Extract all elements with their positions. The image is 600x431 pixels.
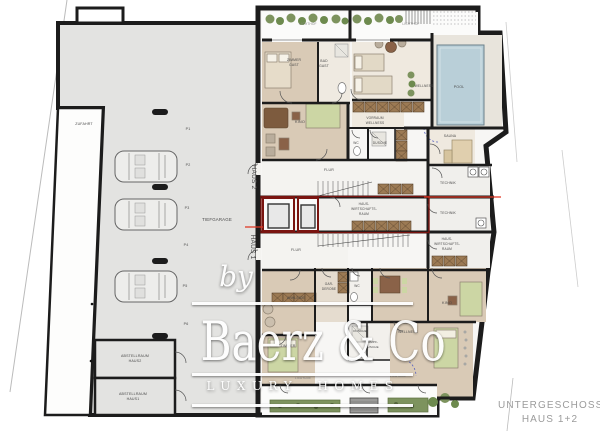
watermark-tagline: LUXURY HOMES xyxy=(192,379,414,393)
label-hwr-haus1: HAUS- xyxy=(442,237,453,241)
plan-title: UNTERGESCHOSS HAUS 1+2 xyxy=(498,399,600,426)
label-parking: P2 xyxy=(186,163,191,167)
label-technik: TECHNIK xyxy=(440,181,457,185)
label-zufahrt: ZUFAHRT xyxy=(75,122,93,126)
label-lichthof: LICHTHOF xyxy=(299,22,316,26)
label-wellness: WELLNESS xyxy=(415,84,434,88)
watermark-rule xyxy=(192,302,413,305)
wall-dot xyxy=(91,303,94,306)
label-hwr-shared: HAUS- xyxy=(359,202,370,206)
label-parking: P6 xyxy=(184,322,189,326)
label-ankleide: ANKLEIDE xyxy=(287,296,306,300)
svg-text:DEROBE: DEROBE xyxy=(322,287,336,291)
sofa-icon xyxy=(264,108,288,128)
label-lichthof: LICHTHOF xyxy=(402,22,419,26)
daybed-icon xyxy=(306,104,340,128)
plan-title-line1: UNTERGESCHOSS xyxy=(498,399,600,413)
label-kino: KINO xyxy=(442,301,452,305)
elevator-shafts xyxy=(263,198,318,231)
parked-cars xyxy=(115,151,177,302)
room-flur-haus1 xyxy=(262,232,348,270)
sofa-icon xyxy=(460,282,482,316)
label-garderobe: GAR- xyxy=(325,282,334,286)
label-vorraum-wellness: VORRAUM xyxy=(366,116,384,120)
plan-title-line2: HAUS 1+2 xyxy=(498,413,600,427)
label-parking: P3 xyxy=(185,206,190,210)
label-parking: P5 xyxy=(183,284,188,288)
label-flur: FLUR xyxy=(324,168,334,172)
watermark-by: by xyxy=(206,260,266,293)
watermark-brand: Baerz & Co xyxy=(201,311,404,373)
toilet-icon xyxy=(338,83,346,94)
table-icon xyxy=(292,112,300,120)
label-flur: FLUR xyxy=(291,248,301,252)
label-tiefgarage: TIEFGARAGE xyxy=(202,217,232,222)
svg-text:RAUM: RAUM xyxy=(442,247,452,251)
garage-top-shaft xyxy=(77,8,123,23)
label-sauna: SAUNA xyxy=(444,134,457,138)
label-kino: KINO xyxy=(295,120,305,124)
floorplan-page: TIEFGARAGE ZUFAHRT P1 P2 P3 P4 P5 P6 ABS… xyxy=(0,0,600,431)
svg-text:RAUM: RAUM xyxy=(359,212,369,216)
svg-text:HAUS1: HAUS1 xyxy=(127,397,140,401)
toilet-icon xyxy=(354,147,361,156)
label-haus1: HAUS 1 xyxy=(249,235,256,260)
svg-text:GAST: GAST xyxy=(289,63,299,67)
elevator-car xyxy=(301,205,315,228)
elevator-car xyxy=(268,204,289,228)
washer-icon xyxy=(468,167,478,177)
toilet-icon xyxy=(351,293,358,302)
watermark-rule xyxy=(192,373,413,376)
label-abstellraum1: ABSTELLRAUM xyxy=(119,392,147,396)
label-dusche: DUSCHE xyxy=(373,141,387,145)
label-technik: TECHNIK xyxy=(440,211,457,215)
watermark-rule xyxy=(192,404,413,407)
washer-icon xyxy=(476,218,486,228)
label-pool: POOL xyxy=(454,85,465,89)
label-zimmer-gast: ZIMMER xyxy=(287,58,302,62)
table-icon xyxy=(380,276,400,293)
label-parking: P4 xyxy=(184,243,189,247)
svg-text:WIRTSCHAFTS-: WIRTSCHAFTS- xyxy=(351,207,377,211)
svg-text:WIRTSCHAFTS-: WIRTSCHAFTS- xyxy=(434,242,460,246)
wall-dot xyxy=(90,360,93,363)
label-wc: WC xyxy=(353,141,359,145)
svg-text:WELLNESS: WELLNESS xyxy=(366,121,385,125)
label-abstellraum2: ABSTELLRAUM xyxy=(121,354,149,358)
svg-text:HAUS2: HAUS2 xyxy=(129,359,142,363)
label-wc: WC xyxy=(354,284,360,288)
label-parking: P1 xyxy=(186,127,191,131)
label-bad-gast: BAD xyxy=(320,59,328,63)
table-icon xyxy=(386,42,397,53)
washer-icon xyxy=(479,167,489,177)
label-haus2: HAUS 2 xyxy=(250,165,257,190)
svg-text:GAST: GAST xyxy=(319,64,329,68)
